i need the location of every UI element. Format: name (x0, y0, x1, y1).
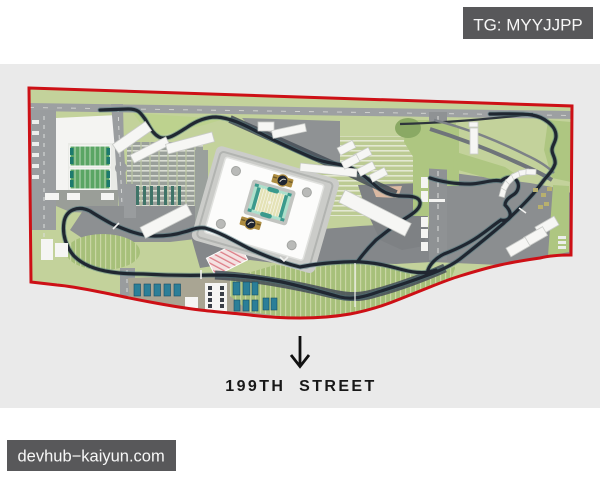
svg-text:TG: MYYJJPP: TG: MYYJJPP (473, 16, 583, 35)
svg-text:devhub−kaiyun.com: devhub−kaiyun.com (18, 448, 165, 466)
svg-text:199TH STREET: 199TH STREET (225, 378, 376, 395)
